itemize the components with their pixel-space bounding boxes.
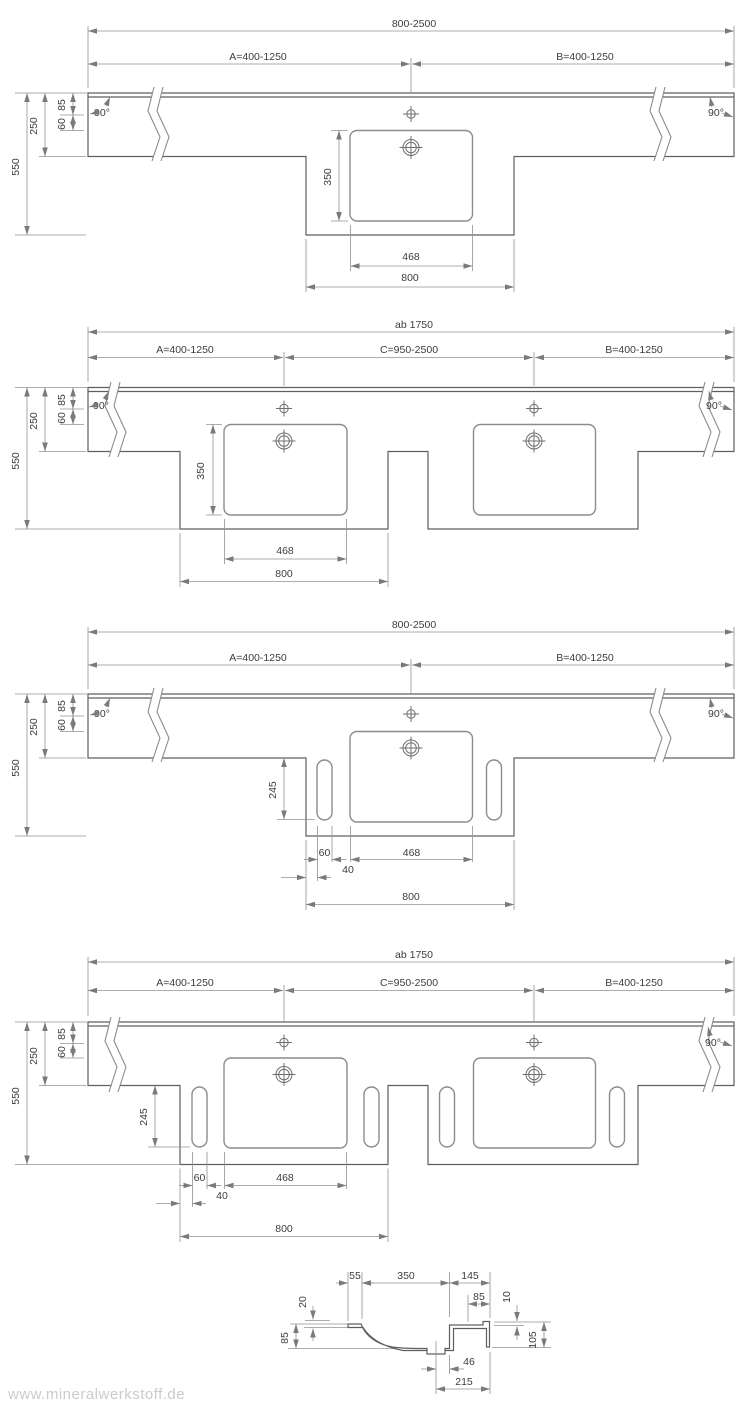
dim-85-label: 85 — [56, 1028, 68, 1040]
dim-20-label: 20 — [297, 1296, 309, 1308]
basin-drain-icon — [273, 1063, 546, 1086]
dim-250-label: 250 — [28, 1047, 40, 1065]
dim-105-label: 105 — [527, 1331, 539, 1349]
dim-60-label: 60 — [56, 1046, 68, 1058]
dim-60-label: 60 — [56, 412, 68, 424]
dim-85-label: 85 — [56, 700, 68, 712]
dim-800-label: 800 — [275, 568, 293, 580]
dim-350-label: 350 — [195, 462, 207, 480]
basin-drain-icon — [400, 737, 423, 760]
dim-60-label: 60 — [56, 118, 68, 130]
dim-550-label: 550 — [10, 759, 22, 777]
watermark: www.mineralwerkstoff.de — [7, 1386, 185, 1403]
towel-rail-slot-left — [317, 760, 332, 820]
angle-left-label: 90° — [94, 708, 110, 720]
angle-left-leader — [106, 97, 110, 106]
dim-40-label: 40 — [216, 1190, 228, 1202]
drawing-double-basin-towel-rails: ab 1750 A=400-1250 C=950-2500 B=400-1250… — [10, 949, 734, 1242]
angle-right-label: 90° — [705, 1037, 721, 1049]
dim-215-label: 215 — [455, 1376, 473, 1388]
dim-350-label: 350 — [397, 1270, 415, 1282]
dim-245-label: 245 — [138, 1108, 150, 1126]
towel-rail-slot-right — [487, 760, 502, 820]
dim-b-label: B=400-1250 — [605, 344, 663, 356]
basin-cutout-left — [224, 1058, 347, 1148]
dim-40-label: 40 — [342, 864, 354, 876]
dim-550-label: 550 — [10, 452, 22, 470]
faucet-hole-icon — [403, 106, 419, 122]
dim-c-label: C=950-2500 — [380, 344, 438, 356]
dim-a-label: A=400-1250 — [156, 977, 214, 989]
dim-245-label: 245 — [267, 781, 279, 799]
dim-60-label: 60 — [194, 1172, 206, 1184]
dim-a-label: A=400-1250 — [156, 344, 214, 356]
dim-60-label: 60 — [319, 847, 331, 859]
towel-rail-slot-2 — [364, 1087, 379, 1147]
angle-right-label: 90° — [708, 708, 724, 720]
dim-b-label: B=400-1250 — [605, 977, 663, 989]
faucet-hole-icon — [276, 401, 542, 417]
towel-rail-slot-1 — [192, 1087, 207, 1147]
section-profile — [348, 1322, 490, 1351]
countertop-outline — [88, 388, 734, 530]
dim-total-label: 800-2500 — [392, 18, 437, 30]
basin-depth-extensions — [206, 425, 222, 516]
dim-145-label: 145 — [461, 1270, 479, 1282]
drawing-double-basin: ab 1750 A=400-1250 C=950-2500 B=400-1250… — [10, 319, 734, 587]
dim-250-label: 250 — [28, 412, 40, 430]
left-extension-lines — [15, 93, 88, 235]
dim-468-label: 468 — [276, 545, 294, 557]
dim-85r-label: 85 — [473, 1291, 485, 1303]
technical-drawing-canvas: 800-2500 A=400-1250 B=400-1250 90° 90° 8… — [0, 0, 749, 1410]
towel-rail-slot-3 — [440, 1087, 455, 1147]
angle-left-label: 90° — [93, 400, 109, 412]
drawing-single-basin-towel-rails: 800-2500 A=400-1250 B=400-1250 90° 90° 8… — [10, 619, 734, 910]
dim-468-label: 468 — [402, 251, 420, 263]
faucet-hole-icon — [403, 706, 419, 722]
left-extension-lines — [15, 1022, 179, 1165]
angle-right-leader — [710, 97, 712, 107]
dim-46-label: 46 — [463, 1356, 475, 1368]
angle-right-label: 90° — [706, 400, 722, 412]
angle-left-label: 90° — [94, 107, 110, 119]
countertop-outline — [88, 1022, 734, 1165]
angle-right-label: 90° — [708, 107, 724, 119]
dim-b-label: B=400-1250 — [556, 51, 614, 63]
angle-left-leader — [106, 698, 110, 707]
drawing-single-basin: 800-2500 A=400-1250 B=400-1250 90° 90° 8… — [10, 18, 734, 292]
dim-85l-label: 85 — [279, 1332, 291, 1344]
dim-60-label: 60 — [56, 719, 68, 731]
right-extension-lines — [492, 1322, 551, 1348]
dim-800-label: 800 — [401, 272, 419, 284]
dim-250-label: 250 — [28, 718, 40, 736]
angle-right-leader — [710, 698, 712, 708]
left-extension-lines — [288, 1321, 396, 1349]
towel-rail-slot-4 — [610, 1087, 625, 1147]
dim-250-label: 250 — [28, 117, 40, 135]
basin-cutout-left — [224, 425, 347, 516]
dim-c-label: C=950-2500 — [380, 977, 438, 989]
dim-a-label: A=400-1250 — [229, 652, 287, 664]
dim-total-label: ab 1750 — [395, 319, 433, 331]
left-extension-lines — [15, 694, 88, 836]
angle-right-leader2 — [720, 1042, 732, 1046]
faucet-hole-icon — [276, 1035, 542, 1051]
dim-b-label: B=400-1250 — [556, 652, 614, 664]
dim-800-label: 800 — [275, 1223, 293, 1235]
dim-468-label: 468 — [276, 1172, 294, 1184]
dim-468-label: 468 — [403, 847, 421, 859]
dim-85-label: 85 — [56, 394, 68, 406]
dim-a-label: A=400-1250 — [229, 51, 287, 63]
basin-drain-icon — [400, 136, 423, 159]
dim-55-label: 55 — [349, 1270, 361, 1282]
dim-350-label: 350 — [322, 168, 334, 186]
dim-550-label: 550 — [10, 158, 22, 176]
drawing-cross-section: 55 350 145 85 10 105 20 85 46 215 — [279, 1270, 551, 1394]
basin-drain-icon — [273, 430, 546, 453]
technical-drawing-page: 800-2500 A=400-1250 B=400-1250 90° 90° 8… — [0, 0, 749, 1410]
dim-10-label: 10 — [501, 1291, 513, 1303]
dim-550-label: 550 — [10, 1087, 22, 1105]
dim-total-label: 800-2500 — [392, 619, 437, 631]
dim-800-label: 800 — [402, 891, 420, 903]
dim-total-label: ab 1750 — [395, 949, 433, 961]
dim-85-label: 85 — [56, 99, 68, 111]
